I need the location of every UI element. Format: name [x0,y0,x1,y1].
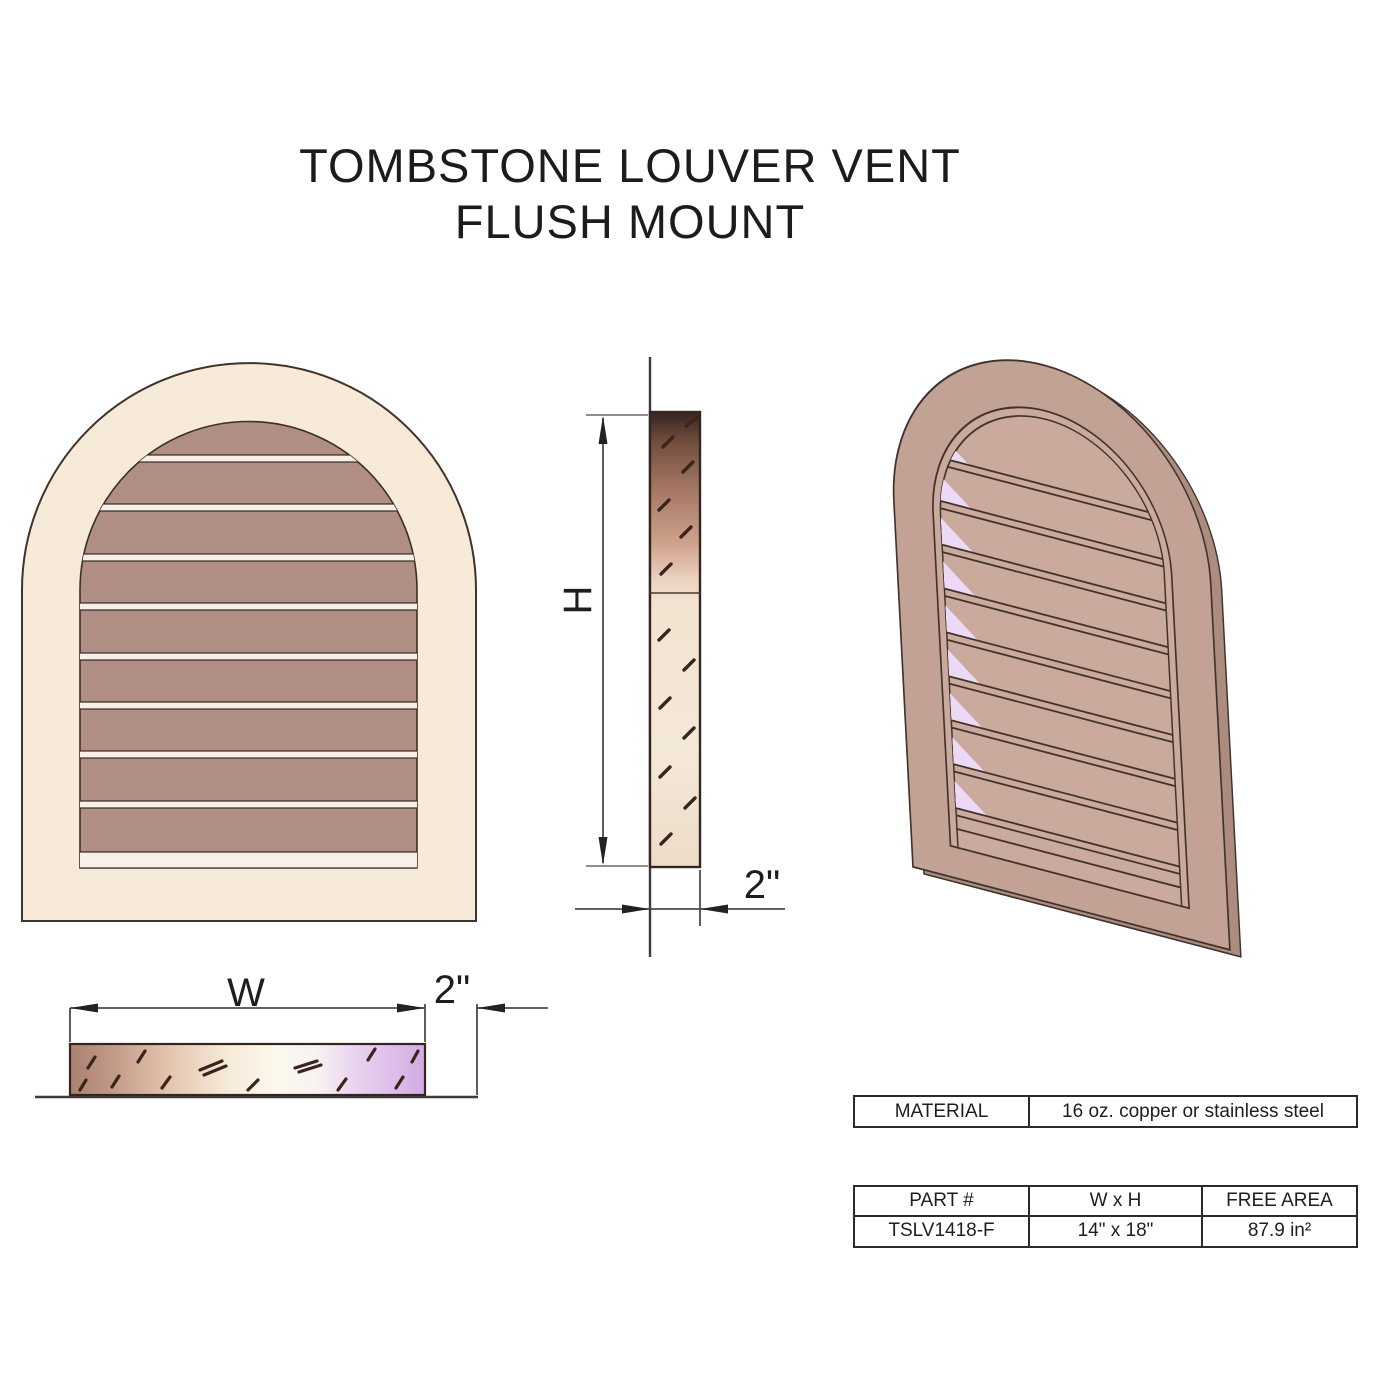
front-view [22,363,476,921]
spec-header-size: W x H [1028,1187,1201,1217]
side-view: H 2" [556,357,785,957]
side-depth-dimension: 2" [575,863,785,926]
front-sill [74,852,423,868]
height-dimension: H [556,415,648,866]
spec-sheet: TOMBSTONE LOUVER VENT FLUSH MOUNT [0,0,1400,1400]
plan-depth-dimension: 2" [434,968,548,1013]
material-table: MATERIAL 16 oz. copper or stainless stee… [853,1095,1358,1128]
material-table-value: 16 oz. copper or stainless steel [1028,1097,1356,1126]
plan-view: W 2" [35,968,548,1097]
width-dimension-label: W [227,971,265,1015]
spec-table: PART # W x H FREE AREA TSLV1418-F 14" x … [853,1185,1358,1248]
side-depth-label: 2" [744,863,780,907]
plan-depth-label: 2" [434,968,470,1012]
spec-value-part: TSLV1418-F [855,1217,1028,1247]
material-table-label: MATERIAL [855,1097,1028,1126]
height-dimension-label: H [556,586,600,615]
spec-header-free-area: FREE AREA [1201,1187,1356,1217]
isometric-view [885,324,1241,957]
spec-value-size: 14" x 18" [1028,1217,1201,1247]
spec-value-free-area: 87.9 in² [1201,1217,1356,1247]
spec-header-part: PART # [855,1187,1028,1217]
